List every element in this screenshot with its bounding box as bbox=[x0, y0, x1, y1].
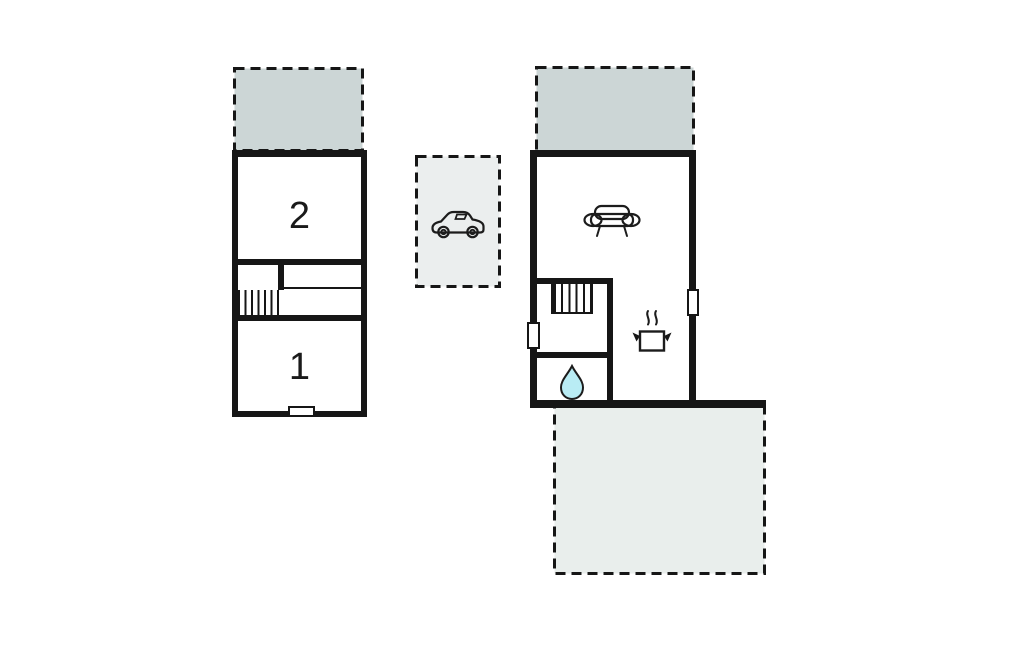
cooking-pot-icon bbox=[631, 308, 673, 358]
garden-patio-area bbox=[555, 407, 765, 574]
right-unit-door-right bbox=[687, 289, 699, 316]
room-label-2: 2 bbox=[232, 196, 367, 236]
water-drop-icon bbox=[559, 364, 585, 400]
left-unit-stair-landing-wall bbox=[278, 262, 284, 290]
floor-plan-canvas: 2 1 bbox=[0, 0, 1024, 652]
terrace-left-unit bbox=[235, 69, 363, 151]
right-unit-bathroom-wall bbox=[536, 352, 608, 358]
room-label-1: 1 bbox=[232, 347, 367, 387]
left-unit-wall-top bbox=[232, 150, 367, 157]
right-unit-wall-top bbox=[530, 150, 696, 157]
left-unit-wall-mid-upper bbox=[232, 259, 367, 265]
left-unit-wall-mid-lower bbox=[232, 315, 367, 321]
stairs-right-unit bbox=[551, 284, 593, 314]
right-unit-wall-right bbox=[689, 150, 696, 408]
right-unit-interior-wall-vertical bbox=[607, 278, 613, 402]
stairs-left-unit bbox=[238, 290, 279, 315]
car-icon bbox=[430, 207, 486, 241]
left-unit-entrance-door bbox=[288, 406, 315, 417]
right-unit-wall-bottom bbox=[530, 400, 766, 408]
outdoor-areas-layer bbox=[0, 0, 1024, 652]
terrace-right-unit bbox=[537, 68, 694, 152]
left-unit-landing-line bbox=[282, 287, 361, 289]
right-unit-stair-room-wall bbox=[536, 278, 608, 284]
sofa-icon bbox=[583, 203, 641, 241]
right-unit-door-left bbox=[527, 322, 540, 349]
